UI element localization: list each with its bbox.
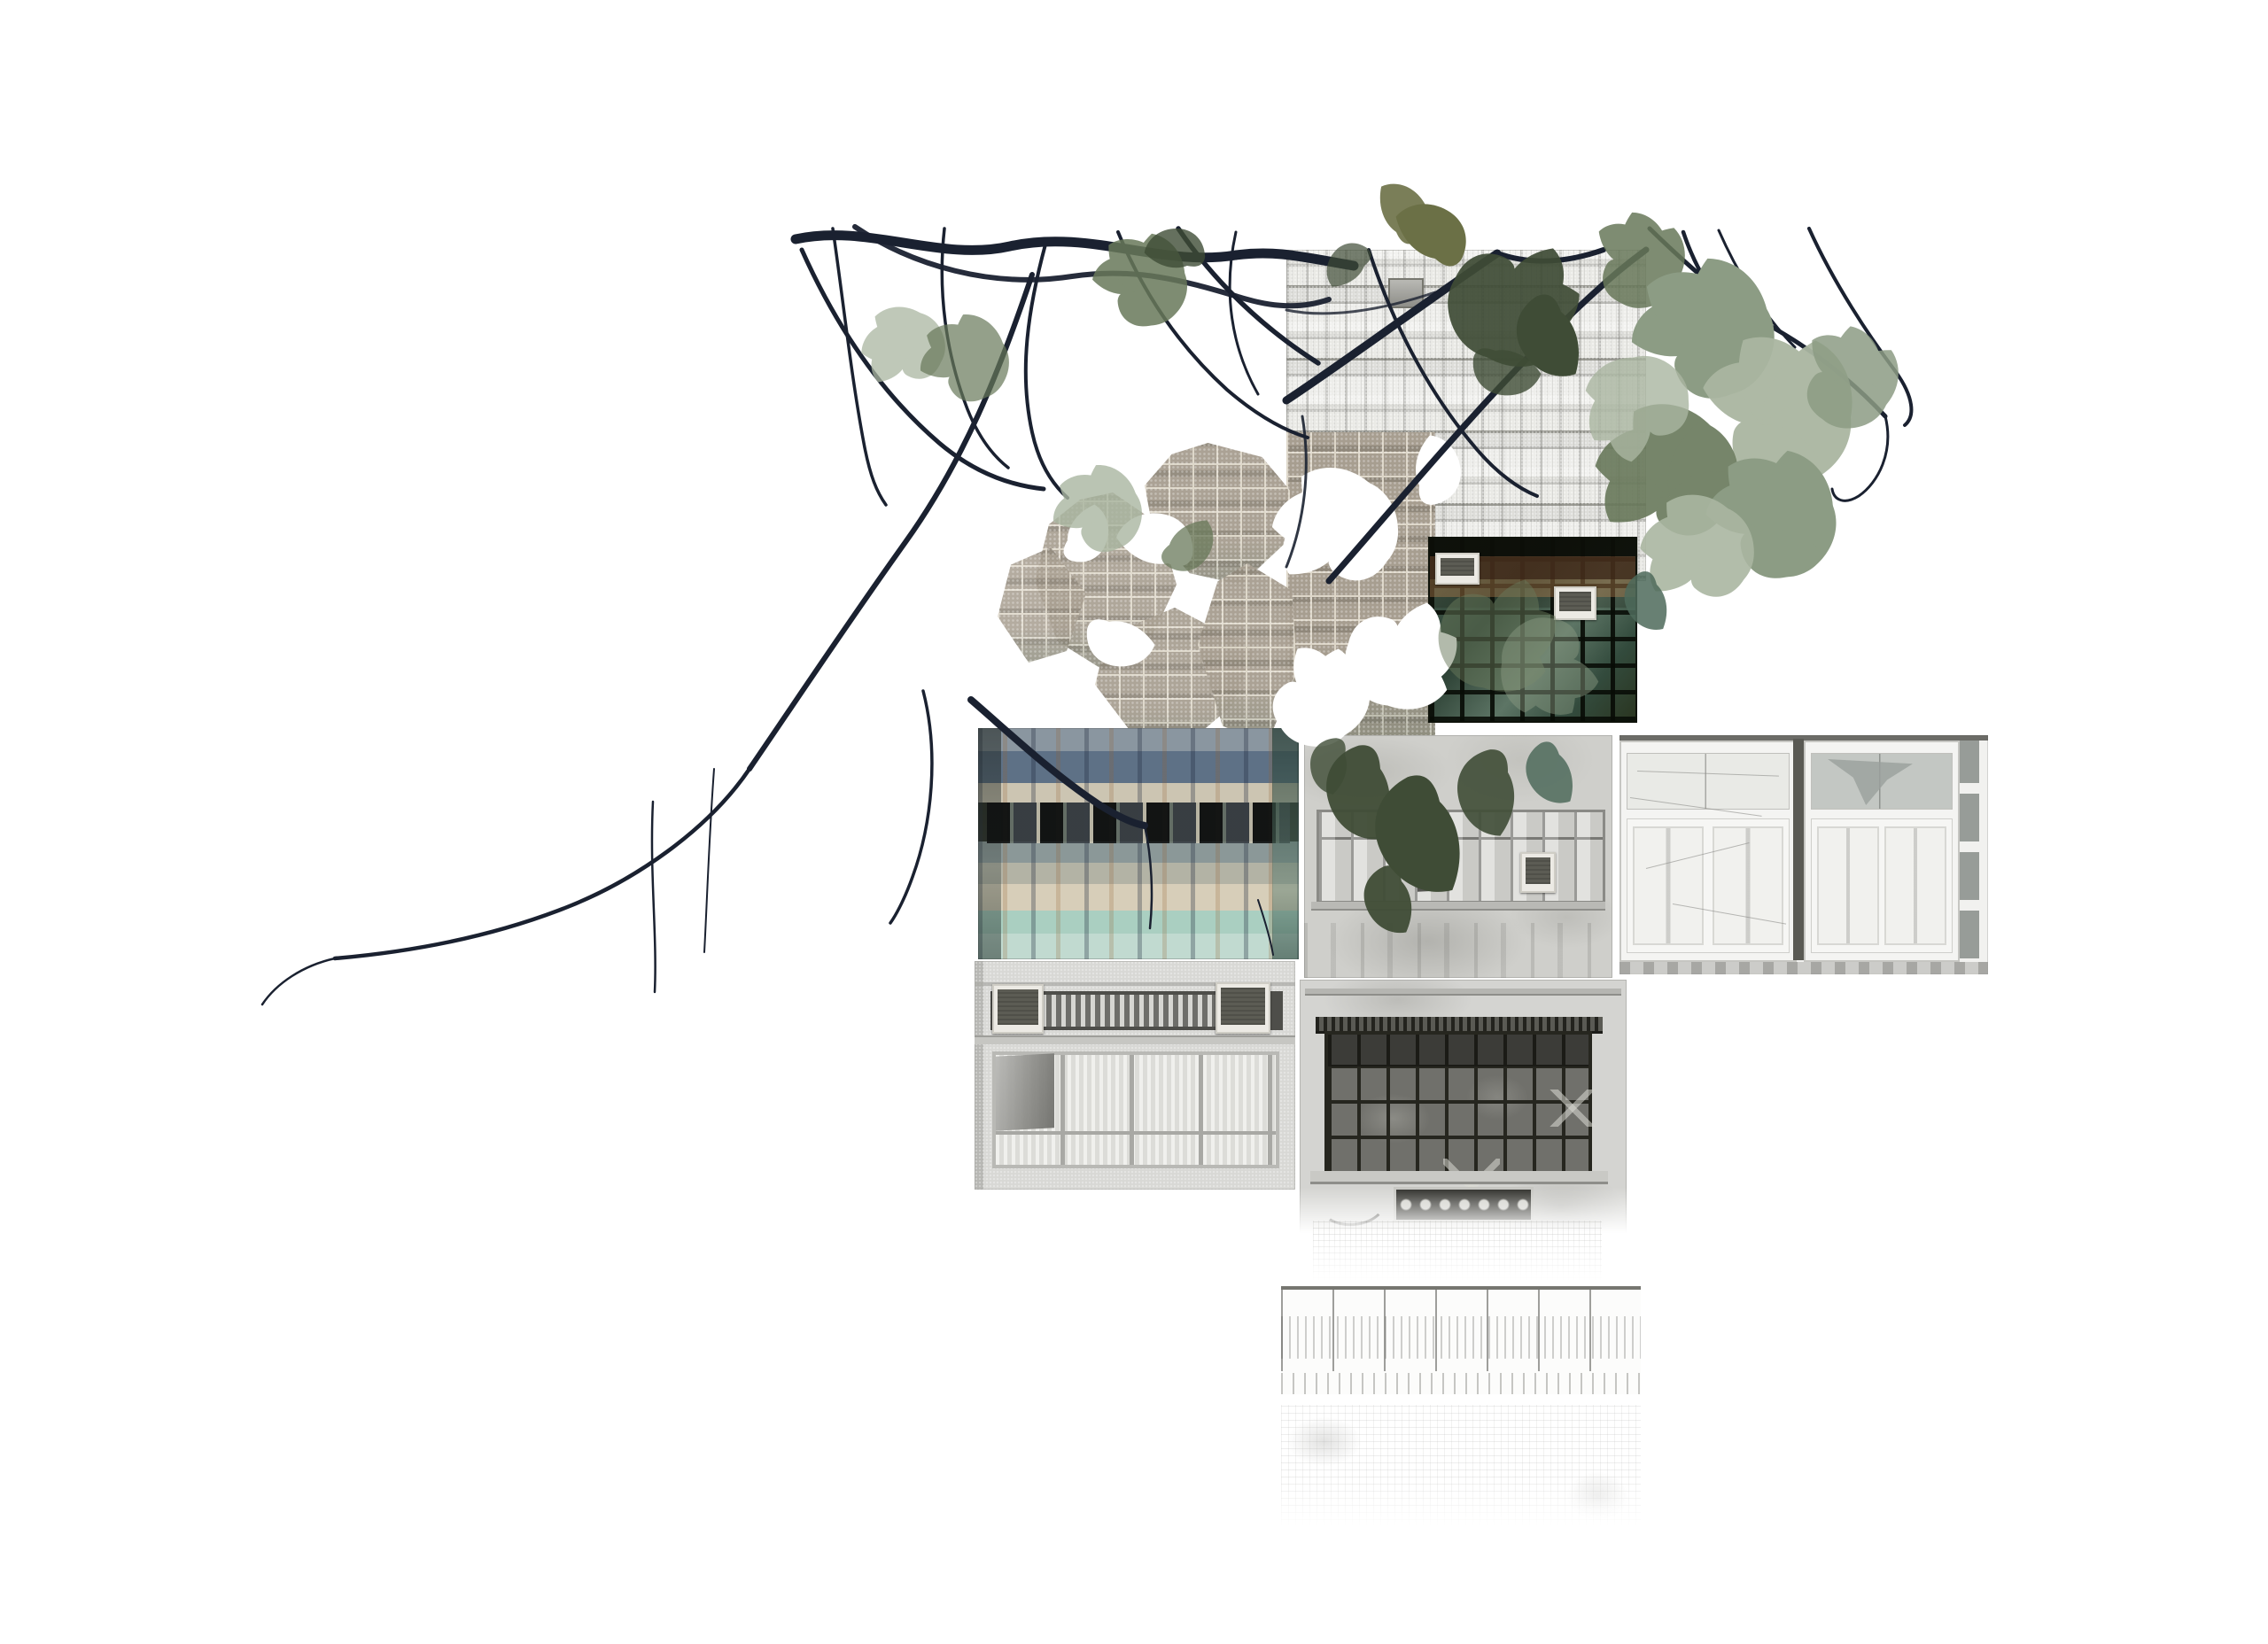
artwork-canvas <box>0 0 2268 1644</box>
panel-concrete-steel-window <box>1304 735 1612 978</box>
ac-unit <box>1520 852 1556 893</box>
stain-drips <box>1304 923 1612 978</box>
weathered-sill-edge <box>1619 962 1988 974</box>
window-ledge <box>975 1035 1295 1044</box>
facade-ac-box <box>1388 278 1424 308</box>
ac-unit <box>992 984 1044 1034</box>
grid-window <box>1324 1031 1592 1178</box>
panel-curtain-window <box>975 961 1295 1190</box>
panel-glass-block-wall <box>1286 432 1435 741</box>
open-pane <box>1417 816 1444 892</box>
ac-unit <box>1554 586 1596 620</box>
side-pane-column <box>1960 741 1979 958</box>
window-sill <box>1311 902 1605 911</box>
dark-window-band <box>987 803 1290 843</box>
panel-pale-broken-window <box>1619 735 1988 974</box>
ac-grille <box>1221 988 1265 1025</box>
window-bay <box>1804 741 1960 962</box>
ac-grille <box>1526 857 1550 884</box>
transom-panes <box>1811 753 1953 810</box>
x-brace <box>1541 1090 1604 1127</box>
center-mullion <box>1793 739 1804 960</box>
ac-grille <box>1441 558 1474 576</box>
ac-unit <box>1216 982 1270 1034</box>
panel-weathered-colorful-facade <box>978 728 1299 959</box>
ac-unit <box>1435 553 1480 585</box>
ac-grille <box>998 989 1038 1025</box>
lower-panes <box>1811 818 1953 953</box>
panel-dark-industrial-window <box>1428 537 1637 723</box>
open-tilted-pane <box>996 1053 1054 1130</box>
transom-curtains <box>1042 995 1230 1027</box>
panel-ghost-grid <box>1281 1405 1641 1527</box>
ghost-window-bays <box>1281 1290 1641 1371</box>
cornice-line <box>1305 989 1621 996</box>
facade-edge-teal <box>1272 728 1299 959</box>
ghost-tick-row <box>1281 1373 1641 1394</box>
facade-edge-shadow <box>978 728 1001 959</box>
panel-industrial-grid-window <box>1300 980 1627 1233</box>
scroll-vent-grille <box>1394 1187 1534 1222</box>
steel-window <box>1317 810 1605 903</box>
panel-ghost-facade-strip <box>1281 1286 1641 1394</box>
hanging-wire <box>1317 1176 1388 1229</box>
ac-grille <box>1559 592 1591 611</box>
broken-glass-shard <box>1828 759 1913 805</box>
lower-panes <box>1627 818 1790 953</box>
